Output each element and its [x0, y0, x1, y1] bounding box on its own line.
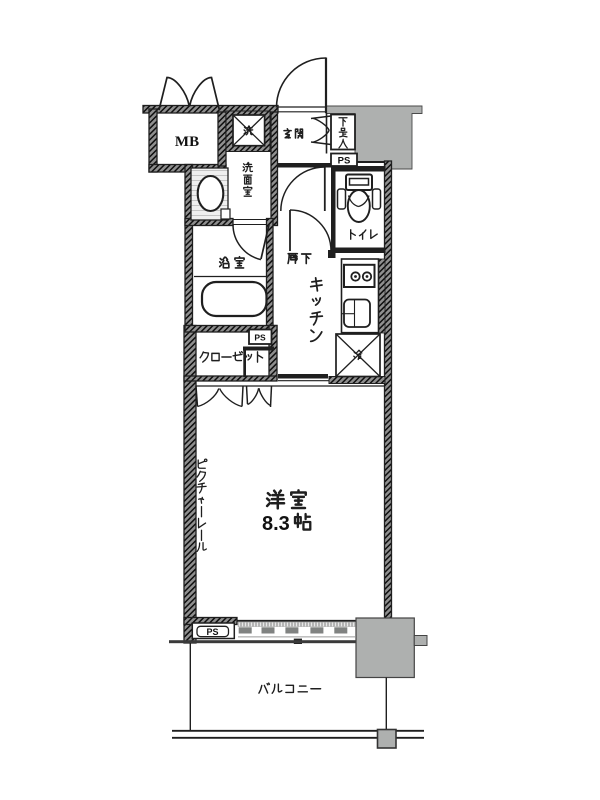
svg-text:MB: MB [175, 134, 199, 150]
svg-text:PS: PS [338, 156, 351, 167]
svg-text:8.3: 8.3 [262, 513, 290, 535]
svg-text:PS: PS [254, 333, 266, 343]
svg-text:PS: PS [206, 627, 218, 637]
